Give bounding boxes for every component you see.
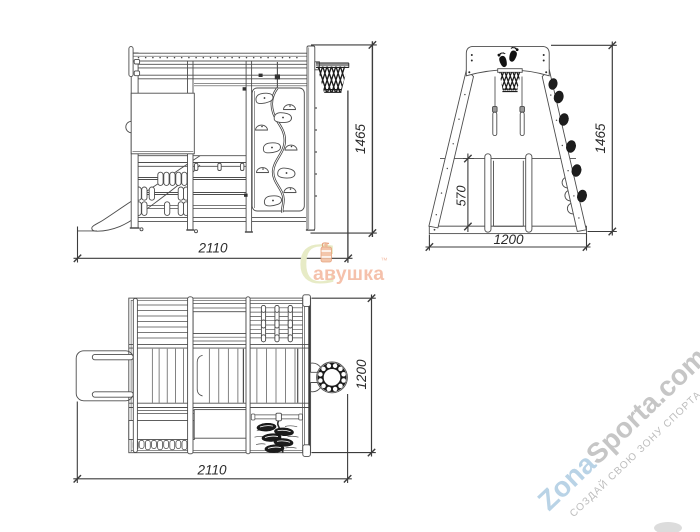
svg-text:570: 570 (454, 186, 468, 207)
svg-text:1200: 1200 (493, 232, 524, 247)
svg-text:1465: 1465 (353, 123, 368, 154)
svg-text:ZonaSporta.com: ZonaSporta.com (532, 341, 700, 516)
svg-text:™: ™ (381, 258, 388, 265)
svg-text:2110: 2110 (196, 462, 227, 477)
svg-text:2110: 2110 (197, 240, 228, 255)
svg-text:авушка: авушка (313, 263, 384, 285)
svg-text:1200: 1200 (354, 359, 369, 390)
svg-text:1465: 1465 (593, 123, 608, 154)
